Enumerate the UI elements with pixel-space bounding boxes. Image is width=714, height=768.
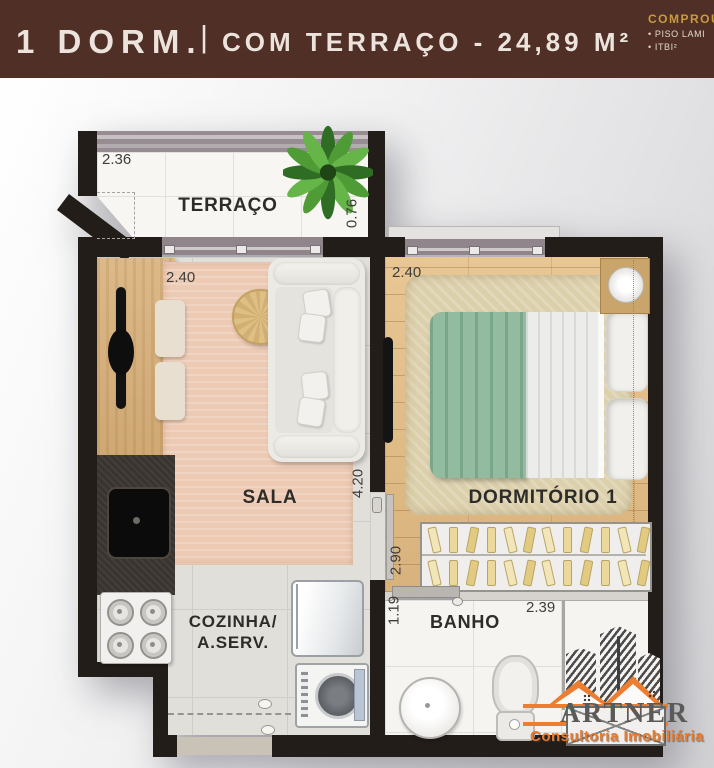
nightstand bbox=[600, 258, 650, 314]
fridge-hinge bbox=[296, 584, 298, 649]
slider-knob bbox=[164, 245, 175, 254]
tv-soundbar bbox=[108, 329, 134, 375]
promo-block: COMPROU PISO LAMI ITBI² bbox=[648, 12, 714, 52]
dim-sala-height: 4.20 bbox=[350, 466, 367, 502]
unit-title: 1 DORM. bbox=[16, 23, 203, 61]
title-separator: | bbox=[200, 19, 208, 55]
dim-dorm-height: 2.90 bbox=[388, 543, 405, 579]
clothes-item bbox=[617, 559, 632, 586]
unit-subtitle: COM TERRAÇO - 24,89 M² bbox=[222, 27, 632, 58]
door-handle bbox=[261, 725, 275, 735]
washer bbox=[295, 663, 369, 728]
bed-pillow bbox=[606, 310, 648, 392]
dorm-window bbox=[405, 239, 545, 255]
bed-sheet-fold bbox=[598, 312, 604, 478]
kitchen-sink bbox=[107, 487, 171, 559]
wall-dorm-top-left bbox=[385, 237, 405, 257]
clothes-item bbox=[601, 527, 610, 553]
roof-window-dots bbox=[648, 690, 656, 698]
room-label-dormitorio: DORMITÓRIO 1 bbox=[463, 487, 623, 509]
clothes-item bbox=[503, 559, 518, 586]
logo-tagline: Consultoria Imobiliária bbox=[520, 728, 714, 745]
washer-tray bbox=[354, 669, 365, 721]
clothes-item bbox=[449, 560, 458, 586]
terraco-sliding-door bbox=[162, 237, 323, 255]
slider-knob bbox=[469, 246, 480, 255]
wall-divider-lower bbox=[370, 580, 385, 757]
wall-bottom-left bbox=[153, 735, 177, 757]
decor-plate bbox=[608, 267, 644, 303]
stove-burner bbox=[140, 632, 167, 659]
clothes-item bbox=[466, 526, 480, 553]
stove-burner bbox=[107, 632, 134, 659]
slider-knob bbox=[310, 245, 321, 254]
clothes-item bbox=[523, 559, 537, 586]
room-label-banho: BANHO bbox=[415, 612, 515, 633]
dim-banho-height: 1.19 bbox=[386, 593, 403, 629]
sofa-armrest bbox=[273, 262, 360, 285]
dorm-door-handle bbox=[372, 497, 382, 513]
pouf bbox=[155, 362, 185, 420]
clothes-item bbox=[637, 526, 651, 553]
terraco-projection-dashed bbox=[97, 192, 135, 239]
wardrobe-clothes-row bbox=[430, 527, 648, 553]
wardrobe-shelf-line bbox=[422, 554, 646, 556]
dim-terraco-width: 2.36 bbox=[102, 151, 131, 168]
dim-sala-width: 2.40 bbox=[166, 269, 195, 286]
bathroom-sink-drain bbox=[425, 703, 430, 708]
entry-door bbox=[177, 737, 272, 755]
clothes-item bbox=[523, 526, 537, 553]
bed bbox=[430, 310, 648, 480]
clothes-item bbox=[487, 560, 496, 586]
dim-dorm-width: 2.40 bbox=[392, 264, 421, 281]
room-label-sala: SALA bbox=[220, 487, 320, 509]
clothes-item bbox=[487, 527, 496, 553]
room-label-cozinha: COZINHA/ A.SERV. bbox=[173, 611, 293, 654]
sofa-pillow bbox=[296, 396, 326, 428]
promo-title: COMPROU bbox=[648, 12, 714, 26]
clothes-item bbox=[617, 526, 632, 553]
sink-faucet bbox=[133, 517, 140, 524]
clothes-item bbox=[449, 527, 458, 553]
clothes-item bbox=[541, 526, 556, 553]
slider-knob bbox=[407, 246, 418, 255]
artner-logo: ARTNER Consultoria Imobiliária bbox=[520, 614, 714, 764]
clothes-item bbox=[601, 560, 610, 586]
slider-knob bbox=[532, 246, 543, 255]
sofa-pillow bbox=[297, 313, 326, 344]
header-bar: 1 DORM. | COM TERRAÇO - 24,89 M² COMPROU… bbox=[0, 0, 714, 78]
wardrobe bbox=[420, 522, 652, 592]
stove-burner bbox=[107, 599, 134, 626]
clothes-item bbox=[563, 527, 572, 553]
logo-name: ARTNER bbox=[560, 698, 668, 730]
clothes-item bbox=[466, 559, 480, 586]
wardrobe-clothes-row bbox=[430, 560, 648, 586]
sofa bbox=[268, 258, 365, 462]
slider-knob bbox=[236, 245, 247, 254]
washer-panel bbox=[301, 671, 308, 717]
sofa-backrest bbox=[333, 287, 361, 433]
bed-sheet bbox=[526, 312, 598, 478]
room-label-terraco: TERRAÇO bbox=[168, 195, 288, 217]
bathroom-sink bbox=[399, 677, 461, 739]
clothes-item bbox=[427, 559, 442, 586]
promo-item-2: ITBI² bbox=[648, 42, 714, 52]
kitchen-projection-line bbox=[168, 713, 291, 715]
clothes-item bbox=[541, 559, 556, 586]
bed-blanket bbox=[430, 312, 526, 478]
cozinha-line2: A.SERV. bbox=[173, 632, 293, 653]
clothes-item bbox=[427, 526, 442, 553]
clothes-item bbox=[563, 560, 572, 586]
clothes-item bbox=[580, 526, 594, 553]
clothes-item bbox=[503, 526, 518, 553]
bed-pillow bbox=[606, 398, 648, 480]
dorm-tv bbox=[383, 337, 393, 443]
pouf bbox=[155, 300, 185, 357]
clothes-item bbox=[580, 559, 594, 586]
stove bbox=[100, 592, 172, 664]
promo-item-1: PISO LAMI bbox=[648, 29, 714, 39]
dim-terraco-depth: 0.76 bbox=[344, 196, 361, 232]
stove-burner bbox=[140, 599, 167, 626]
fridge bbox=[291, 580, 364, 657]
toilet-button bbox=[509, 719, 520, 730]
wall-terraco-sala-left bbox=[78, 237, 162, 257]
banho-door-handle bbox=[452, 597, 463, 606]
wall-left-main bbox=[78, 237, 97, 677]
cozinha-line1: COZINHA/ bbox=[173, 611, 293, 632]
wall-dorm-top-right bbox=[545, 237, 663, 257]
door-handle bbox=[258, 699, 272, 709]
floorplan-page: 1 DORM. | COM TERRAÇO - 24,89 M² COMPROU… bbox=[0, 0, 714, 768]
wall-left-upper bbox=[78, 131, 97, 196]
clothes-item bbox=[637, 559, 651, 586]
sofa-armrest bbox=[273, 435, 360, 458]
